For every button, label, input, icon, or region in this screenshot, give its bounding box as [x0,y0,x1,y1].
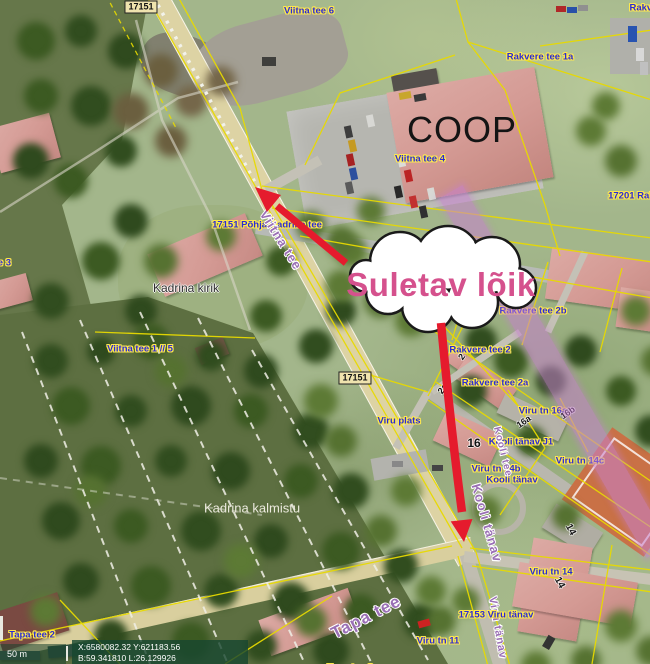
scale-tick [66,646,68,661]
trees-brown-layer [0,0,22,22]
closure-label: Suletav lõik [346,266,535,304]
building-school-wing [615,287,650,333]
scale-bar: 50 m [0,644,66,664]
coordinates-readout: X:6580082.32 Y:621183.56 B:59.341810 L:2… [72,640,248,664]
coop-sign-text: COOP [407,109,517,151]
circular-garden [472,481,526,535]
coordinate-xy: X:6580082.32 Y:621183.56 [78,642,248,653]
scale-label: 50 m [7,649,27,659]
northeast-parking [610,18,650,74]
scale-edge-tick [0,616,3,640]
map-canvas[interactable]: 17151Viitna tee 6RakvereRakvere tee 1aVi… [0,0,650,664]
coordinate-bl: B:59.341810 L:26.129926 [78,653,248,664]
